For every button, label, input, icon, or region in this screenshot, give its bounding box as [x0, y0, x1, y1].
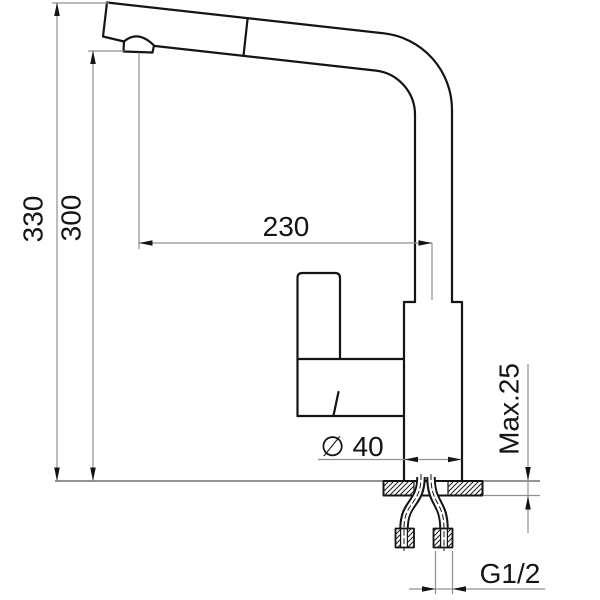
arrowhead-down — [525, 467, 531, 481]
spout-joint-line — [244, 20, 248, 56]
dimension-diameter-40: ∅ 40 — [318, 431, 462, 462]
body-left-shoulder — [404, 302, 415, 481]
arrowhead-right — [448, 457, 462, 463]
body-right-shoulder — [452, 302, 462, 481]
arrowhead-down — [90, 468, 96, 482]
countertop-hatch-left — [384, 482, 415, 496]
dimension-max-25: Max.25 — [484, 363, 540, 533]
faucet-dimension-drawing: 330 300 230 ∅ 40 Max.25 G — [0, 0, 600, 600]
arrowhead-right — [419, 240, 433, 246]
aerator-body — [124, 42, 155, 53]
dimension-label: G1/2 — [480, 558, 541, 589]
arrowhead-right — [422, 586, 436, 592]
arrowhead-left — [405, 457, 419, 463]
dimension-label: 330 — [18, 196, 49, 243]
faucet-technical-drawing: 330 300 230 ∅ 40 Max.25 G — [0, 0, 600, 600]
arrowhead-up — [90, 51, 96, 65]
arrowhead-left — [139, 240, 153, 246]
dimension-300: 300 — [56, 51, 125, 482]
dimension-label: ∅ 40 — [320, 431, 383, 462]
spout-inner-edge — [155, 46, 415, 302]
dimension-label: Max.25 — [494, 363, 525, 455]
arrowhead-down — [54, 468, 60, 482]
aerator-dome — [124, 36, 154, 45]
arrowhead-up — [525, 496, 531, 510]
handle-lever — [298, 273, 341, 416]
dimension-label: 300 — [56, 195, 87, 242]
dimension-g12: G1/2 — [409, 551, 545, 594]
countertop-hatch-right — [448, 482, 483, 496]
handle-lever-edge — [334, 392, 339, 416]
spout-front-edge — [103, 3, 124, 42]
arrowhead-left — [453, 586, 467, 592]
dimension-label: 230 — [263, 211, 310, 242]
arrowhead-up — [54, 3, 60, 17]
dimension-230: 230 — [139, 53, 432, 301]
countertop-section — [55, 481, 540, 496]
